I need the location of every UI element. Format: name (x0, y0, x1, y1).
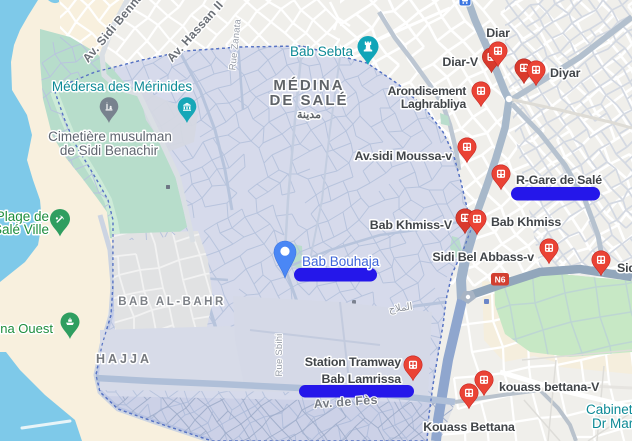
svg-text:Arondisement: Arondisement (388, 84, 467, 98)
svg-text:Rue Sbihi: Rue Sbihi (274, 334, 285, 377)
svg-text:Bab Khmiss-V: Bab Khmiss-V (370, 218, 453, 232)
svg-text:Diyar: Diyar (550, 66, 581, 80)
svg-text:Salé Ville: Salé Ville (0, 222, 49, 237)
svg-text:الملاح: الملاح (388, 301, 413, 315)
svg-text:Sidi Bel Abbass-v: Sidi Bel Abbass-v (432, 250, 534, 264)
svg-text:مدينة: مدينة (297, 109, 321, 121)
svg-text:Bab Khmiss: Bab Khmiss (491, 215, 561, 229)
svg-text:Rue Zanata: Rue Zanata (227, 18, 243, 71)
svg-text:Station Tramway: Station Tramway (305, 355, 401, 369)
svg-text:Bab Lamrissa: Bab Lamrissa (322, 372, 402, 386)
svg-text:Diar: Diar (486, 26, 510, 40)
svg-text:Cimetière musulman: Cimetière musulman (48, 129, 172, 144)
svg-text:Laghrabliya: Laghrabliya (401, 97, 467, 111)
svg-text:Av.sidi Moussa-v: Av.sidi Moussa-v (355, 149, 453, 163)
svg-text:de Sidi Benachir: de Sidi Benachir (60, 143, 159, 158)
svg-text:Av. Hassan II: Av. Hassan II (164, 0, 226, 65)
svg-text:Kouass Bettana: Kouass Bettana (423, 420, 515, 434)
svg-text:Dr Maryam: Dr Maryam (592, 416, 632, 431)
svg-text:HAJJA: HAJJA (96, 352, 152, 366)
svg-text:Marina Ouest: Marina Ouest (0, 321, 53, 336)
svg-text:Av. Sidi Benna: Av. Sidi Benna (80, 0, 147, 65)
svg-text:Bab Bouhaja: Bab Bouhaja (302, 254, 380, 269)
svg-text:BAB AL-BAHR: BAB AL-BAHR (118, 296, 226, 308)
svg-text:Bab Sebta: Bab Sebta (290, 44, 354, 59)
svg-text:kouass bettana-V: kouass bettana-V (499, 380, 600, 394)
svg-text:Médersa des Mérinides: Médersa des Mérinides (52, 79, 193, 94)
svg-text:N6: N6 (495, 275, 506, 285)
svg-text:Diar-V: Diar-V (442, 55, 478, 69)
svg-text:DE SALÉ: DE SALÉ (269, 92, 348, 109)
svg-text:Cabinet: Cabinet (586, 402, 632, 417)
svg-text:Sidi: Sidi (617, 261, 632, 275)
svg-text:R-Gare de Salé: R-Gare de Salé (516, 173, 602, 187)
